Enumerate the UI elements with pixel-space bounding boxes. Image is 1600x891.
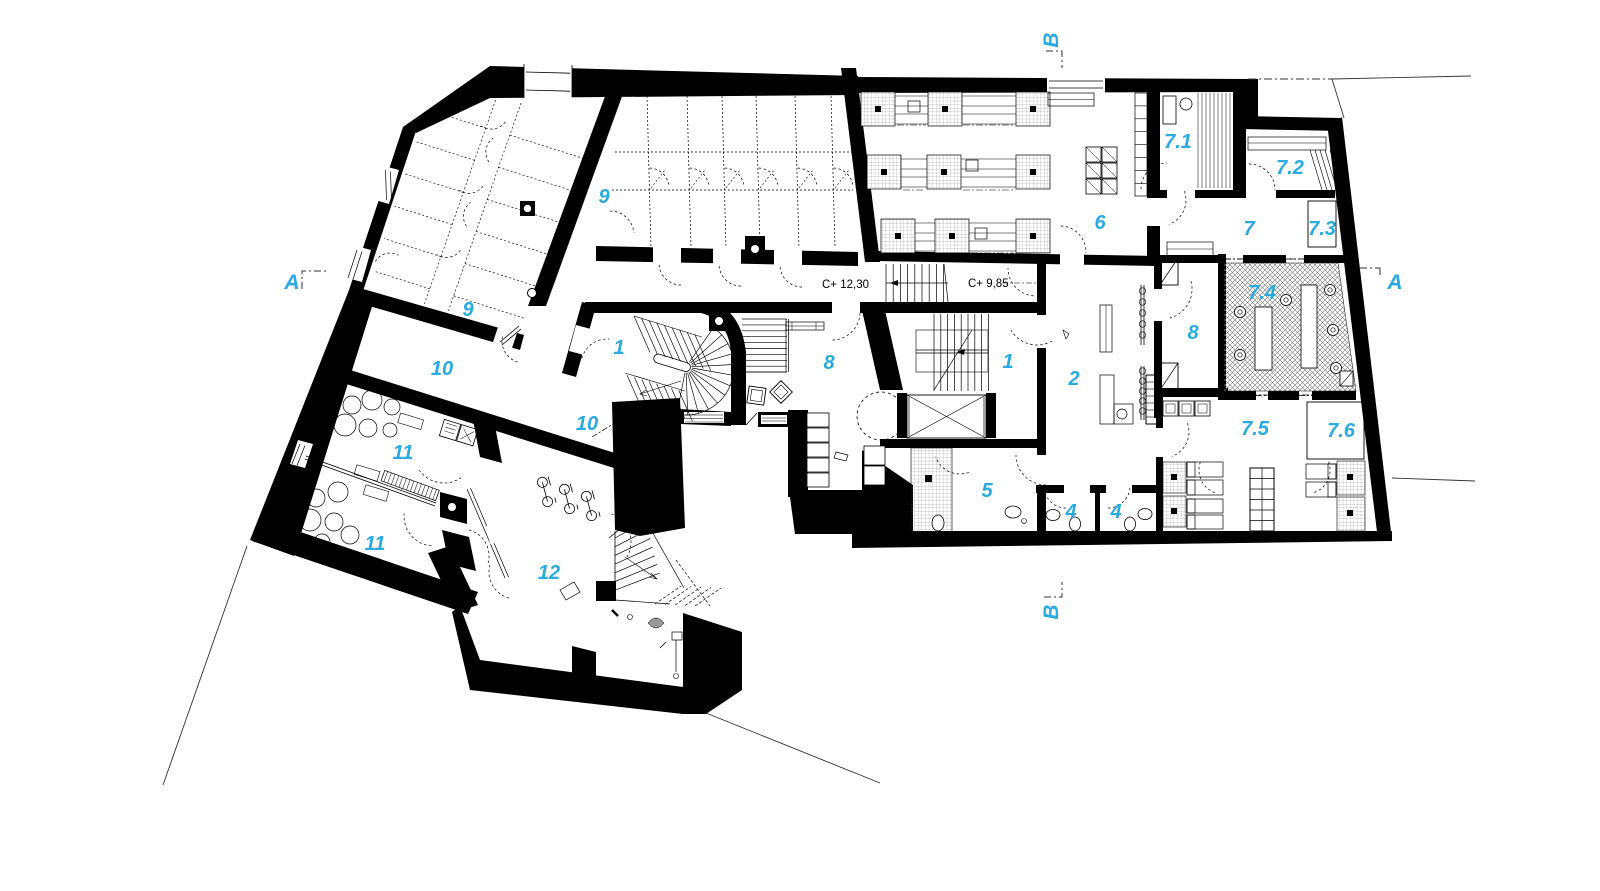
svg-text:C+ 9,85: C+ 9,85 xyxy=(968,278,1009,290)
svg-text:7.1: 7.1 xyxy=(1164,131,1192,153)
svg-text:C+ 12,30: C+ 12,30 xyxy=(822,279,869,291)
svg-text:7.6: 7.6 xyxy=(1327,420,1356,442)
svg-text:A: A xyxy=(1386,271,1402,294)
svg-text:A: A xyxy=(283,271,299,294)
svg-text:7.5: 7.5 xyxy=(1241,418,1270,440)
svg-text:B: B xyxy=(1040,604,1063,619)
svg-text:5: 5 xyxy=(981,480,993,502)
svg-text:6: 6 xyxy=(1094,212,1106,234)
svg-text:10: 10 xyxy=(431,358,453,380)
svg-text:4: 4 xyxy=(1064,501,1076,523)
svg-text:10: 10 xyxy=(576,413,598,435)
svg-text:4: 4 xyxy=(1109,501,1121,523)
svg-text:11: 11 xyxy=(365,533,386,555)
svg-text:9: 9 xyxy=(462,299,474,321)
svg-text:B: B xyxy=(1040,32,1063,47)
svg-text:7.3: 7.3 xyxy=(1308,218,1336,240)
svg-text:1: 1 xyxy=(1002,351,1013,373)
svg-text:2: 2 xyxy=(1067,368,1079,390)
svg-text:7: 7 xyxy=(1243,218,1255,240)
svg-text:7.4: 7.4 xyxy=(1248,282,1276,304)
svg-text:8: 8 xyxy=(823,352,835,374)
svg-text:7.2: 7.2 xyxy=(1276,157,1304,179)
svg-text:8: 8 xyxy=(1187,322,1199,344)
svg-text:1: 1 xyxy=(613,337,624,359)
svg-text:9: 9 xyxy=(598,186,610,208)
svg-text:11: 11 xyxy=(393,442,414,464)
svg-text:12: 12 xyxy=(538,562,560,584)
